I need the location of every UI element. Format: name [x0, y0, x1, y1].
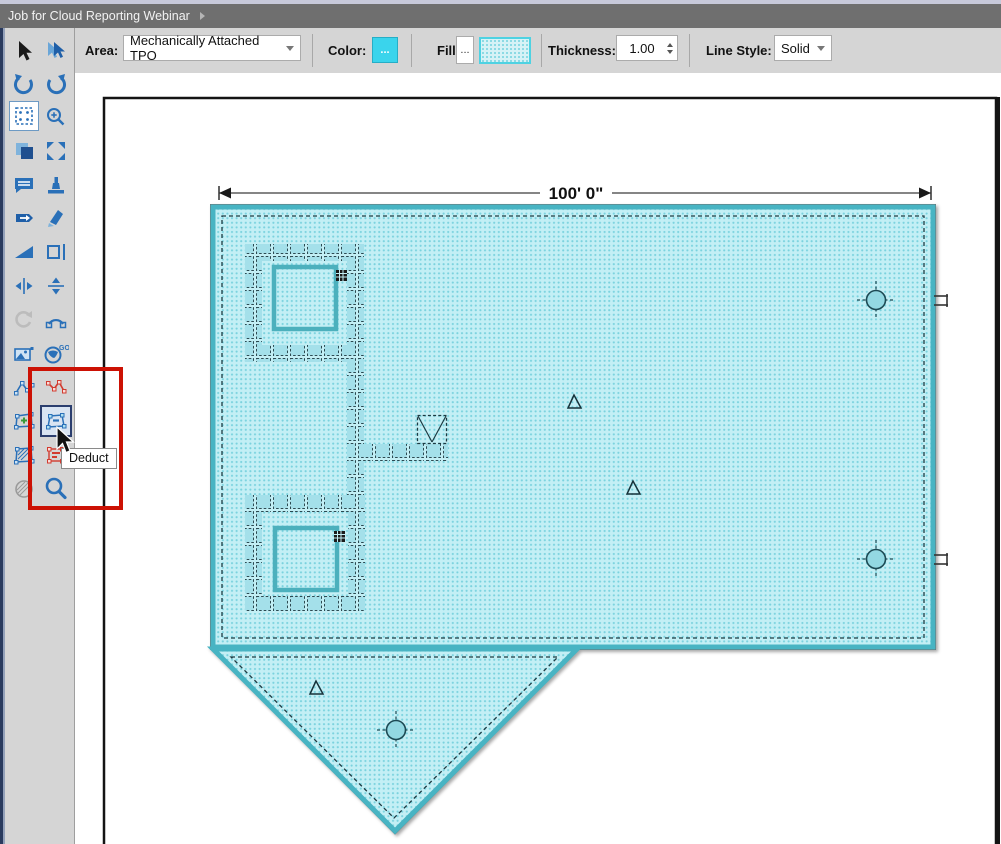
mouse-cursor-icon [56, 426, 78, 456]
color-picker-button[interactable]: ... [372, 37, 398, 63]
title-caret-icon [200, 12, 205, 20]
redo-icon [44, 72, 68, 96]
app-window: Job for Cloud Reporting Webinar Area: Me… [0, 0, 1001, 844]
window-title: Job for Cloud Reporting Webinar [0, 9, 190, 23]
dimension-100ft: 100' 0" [219, 181, 931, 204]
line-style-value: Solid [781, 41, 810, 56]
color-label: Color: [328, 43, 366, 58]
toolbar-separator [689, 34, 690, 67]
comment-tool-button[interactable] [10, 171, 38, 199]
arc-icon [44, 308, 68, 332]
tag-arrow-icon [12, 206, 36, 230]
area-dropdown[interactable]: Mechanically Attached TPO [123, 35, 301, 61]
zoom-magnifier-icon [44, 105, 68, 129]
toolbar-separator [411, 34, 412, 67]
flip-horizontal-button[interactable] [10, 272, 38, 300]
toolbar-separator [541, 34, 542, 67]
line-style-label: Line Style: [706, 43, 772, 58]
window-left-edge-highlight [3, 28, 5, 844]
image-icon [12, 342, 36, 366]
thickness-label: Thickness: [548, 43, 616, 58]
zoom-extents-button[interactable] [9, 101, 39, 131]
equipment-marker-icon [336, 270, 347, 281]
globe-go-icon: GO [43, 342, 69, 366]
line-style-dropdown[interactable]: Solid [774, 35, 832, 61]
chevron-down-icon [286, 46, 294, 51]
roof-plan-svg: 100' 0" [75, 73, 1001, 844]
dimension-label: 100' 0" [549, 184, 604, 203]
image-tool-button[interactable] [10, 340, 38, 368]
highlighter-tool-button[interactable] [42, 204, 70, 232]
fill-picker-button[interactable]: ... [456, 36, 474, 64]
slope-tool-button[interactable] [10, 238, 38, 266]
fit-view-button[interactable] [42, 137, 70, 165]
offset-region-button[interactable] [42, 238, 70, 266]
roof-main-area[interactable] [211, 205, 936, 650]
comment-bubble-icon [12, 173, 36, 197]
duplicate-button[interactable] [10, 137, 38, 165]
chevron-down-icon [817, 46, 825, 51]
arc-tool-button[interactable] [42, 306, 70, 334]
svg-text:GO: GO [59, 345, 69, 352]
fill-swatch[interactable] [479, 37, 531, 64]
stamp-tool-button[interactable] [42, 171, 70, 199]
thickness-value: 1.00 [617, 41, 667, 56]
rotate-button-disabled [10, 306, 38, 334]
multi-select-tool-button[interactable] [42, 37, 70, 65]
toolbar-separator [312, 34, 313, 67]
rotate-icon [12, 308, 36, 332]
area-value: Mechanically Attached TPO [130, 33, 286, 63]
expand-arrows-icon [44, 139, 68, 163]
undo-icon [12, 72, 36, 96]
flip-vertical-button[interactable] [42, 272, 70, 300]
multi-select-arrows-icon [44, 39, 68, 63]
redo-button[interactable] [42, 70, 70, 98]
flip-horizontal-icon [12, 274, 36, 298]
undo-button[interactable] [10, 70, 38, 98]
zoom-window-button[interactable] [42, 103, 70, 131]
select-arrow-icon [12, 39, 36, 63]
select-tool-button[interactable] [10, 37, 38, 65]
thickness-stepper[interactable]: 1.00 [616, 35, 678, 61]
equipment-marker-icon [334, 531, 345, 542]
scupper-symbol[interactable] [934, 294, 948, 566]
roof-triangle-area[interactable] [211, 649, 579, 834]
globe-go-button[interactable]: GO [42, 340, 70, 368]
highlighter-icon [44, 206, 68, 230]
stepper-arrows-icon[interactable] [667, 43, 677, 54]
slope-triangle-icon [12, 240, 36, 264]
zoom-extents-icon [13, 105, 35, 127]
area-label: Area: [85, 43, 118, 58]
flip-vertical-icon [44, 274, 68, 298]
duplicate-squares-icon [12, 139, 36, 163]
stamp-icon [44, 173, 68, 197]
title-bar: Job for Cloud Reporting Webinar [0, 4, 1001, 28]
square-line-icon [44, 240, 68, 264]
tag-tool-button[interactable] [10, 204, 38, 232]
drawing-canvas[interactable]: 100' 0" [75, 73, 1001, 844]
properties-toolbar: Area: Mechanically Attached TPO Color: .… [75, 28, 1001, 74]
